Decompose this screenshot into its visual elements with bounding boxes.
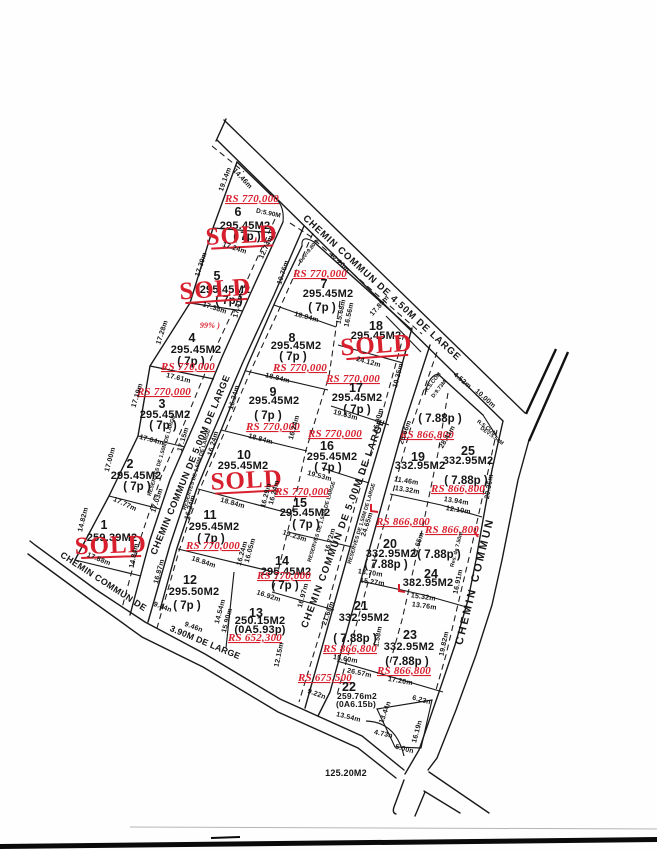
svg-text:RS 770,000: RS 770,000 (307, 428, 362, 440)
svg-text:332.95M2: 332.95M2 (339, 612, 390, 624)
svg-text:( 7p ): ( 7p ) (123, 481, 151, 493)
svg-text:RS 770,000: RS 770,000 (185, 540, 240, 552)
svg-text:332.95M2: 332.95M2 (395, 460, 446, 472)
svg-text:295.45M2: 295.45M2 (189, 521, 240, 533)
svg-text:2: 2 (127, 457, 134, 471)
svg-text:RS 866,800: RS 866,800 (430, 483, 485, 495)
svg-text:( 7p ): ( 7p ) (173, 600, 201, 612)
svg-text:( 7p ): ( 7p ) (271, 580, 299, 592)
svg-text:295.45M2: 295.45M2 (171, 344, 222, 356)
svg-text:1: 1 (101, 518, 108, 532)
svg-text:12: 12 (183, 573, 197, 587)
svg-text:RS 770,000: RS 770,000 (272, 362, 327, 374)
svg-text:332.95M2: 332.95M2 (403, 577, 454, 589)
svg-text:( 7p ): ( 7p ) (308, 302, 336, 314)
svg-text:RS 770,000: RS 770,000 (160, 361, 215, 373)
svg-text:RS 866,800: RS 866,800 (424, 524, 479, 536)
svg-text:RS 770,000: RS 770,000 (224, 193, 279, 205)
svg-text:21: 21 (354, 599, 368, 613)
svg-text:295.45M2: 295.45M2 (332, 392, 383, 404)
svg-text:23: 23 (403, 628, 417, 642)
svg-text:99% ): 99% ) (200, 321, 220, 330)
svg-text:295.50M2: 295.50M2 (169, 586, 220, 598)
svg-text:332.95M2: 332.95M2 (384, 641, 435, 653)
svg-text:RS 866,800: RS 866,800 (376, 665, 431, 677)
svg-text:RS 652,300: RS 652,300 (227, 632, 282, 644)
svg-text:11: 11 (203, 508, 216, 522)
svg-text:( 7.88p ): ( 7.88p ) (418, 413, 462, 425)
svg-text:125.20M2: 125.20M2 (325, 768, 367, 778)
svg-text:4: 4 (189, 331, 196, 345)
svg-text:6: 6 (235, 205, 242, 219)
svg-text:RS 866,800: RS 866,800 (322, 643, 377, 655)
svg-text:(0A6.15b): (0A6.15b) (336, 699, 376, 709)
svg-text:RS 866,800: RS 866,800 (375, 516, 430, 528)
svg-text:295.45M2: 295.45M2 (249, 395, 300, 407)
svg-text:332.95M2: 332.95M2 (443, 455, 494, 467)
svg-text:295.45M2: 295.45M2 (303, 288, 354, 300)
